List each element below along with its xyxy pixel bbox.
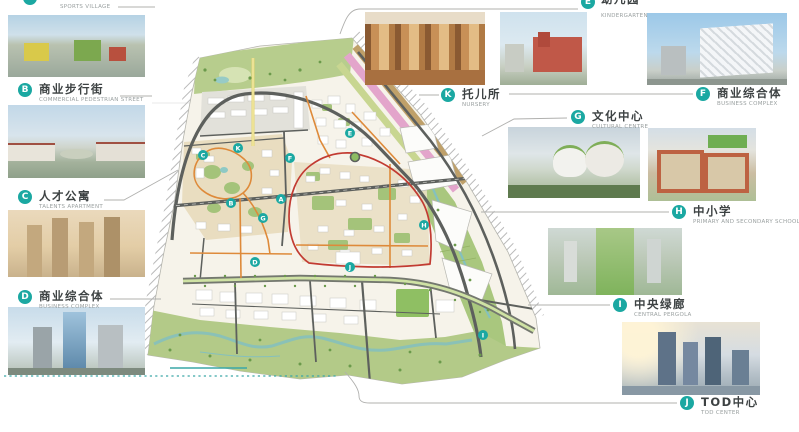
- decor-tower: [27, 225, 42, 277]
- decor-street: [8, 368, 145, 375]
- label-H-subtitle: PRIMARY AND SECONDARY SCHOOLS: [693, 219, 799, 225]
- label-K-subtitle: NURSERY: [462, 102, 501, 108]
- decor-curved-hall: [553, 145, 587, 176]
- decor-curved-hall: [585, 141, 625, 177]
- decor-building-right: [96, 142, 145, 162]
- label-C-subtitle: TALENTS APARTMENT: [39, 204, 103, 210]
- decor-floor: [365, 70, 485, 85]
- photo-cultural-centre: [508, 127, 640, 198]
- label-K-title: 托儿所: [462, 88, 501, 100]
- decor-plaza: [60, 149, 93, 159]
- photo-sports-village: [8, 15, 145, 77]
- decor-tower: [79, 222, 94, 277]
- decor-tower: [661, 46, 686, 75]
- badge-B: B: [18, 83, 32, 97]
- label-I: I 中央绿廊 CENTRAL PERGOLA: [613, 298, 692, 318]
- label-E-title: 幼儿园: [601, 0, 640, 5]
- label-F: F 商业综合体 BUSINESS COMPLEX: [696, 87, 782, 107]
- map-marker-label-F: F: [288, 154, 292, 162]
- label-H-title: 中小学: [693, 205, 799, 217]
- photo-kindergarten: [500, 12, 587, 85]
- decor-tower: [683, 342, 698, 384]
- photo-central-green-corridor: [548, 228, 682, 295]
- label-C-title: 人才公寓: [39, 190, 103, 202]
- photo-tod-center: [622, 322, 760, 395]
- west-pond: [220, 167, 228, 173]
- label-B-subtitle: COMMERCIAL PEDESTRIAN STREET: [39, 97, 144, 103]
- roundabout: [351, 153, 360, 162]
- label-G-subtitle: CULTURAL CENTRE: [592, 124, 648, 130]
- label-D-subtitle: BUSINESS COMPLEX: [39, 304, 104, 310]
- badge-J: J: [680, 396, 694, 410]
- label-I-subtitle: CENTRAL PERGOLA: [634, 312, 692, 318]
- photo-schools: [648, 128, 756, 201]
- decor-roads: [622, 386, 760, 395]
- label-K: K 托儿所 NURSERY: [441, 88, 501, 108]
- photo-business-complex-f: [647, 13, 787, 85]
- badge-I: I: [613, 298, 627, 312]
- label-I-title: 中央绿廊: [634, 298, 692, 310]
- map-marker-label-H: H: [421, 221, 426, 229]
- label-E-subtitle: KINDERGARTEN: [601, 13, 648, 19]
- decor-tower: [732, 350, 749, 385]
- photo-talents-apartment: [8, 210, 145, 277]
- decor-building-green: [74, 40, 101, 62]
- decor-trees: [508, 185, 640, 198]
- decor-tower: [705, 337, 722, 385]
- decor-courtyard-block: [704, 153, 749, 193]
- label-J-title: TOD中心: [701, 396, 759, 408]
- label-G-title: 文化中心: [592, 110, 648, 122]
- label-J: J TOD中心 TOD CENTER: [680, 396, 759, 416]
- photo-business-complex-d: [8, 307, 145, 375]
- label-H: H 中小学 PRIMARY AND SECONDARY SCHOOLS: [672, 205, 799, 225]
- decor-green-axis: [596, 228, 634, 295]
- decor-tower: [104, 217, 120, 277]
- label-B: B 商业步行街 COMMERCIAL PEDESTRIAN STREET: [18, 83, 144, 103]
- label-F-subtitle: BUSINESS COMPLEX: [717, 101, 782, 107]
- map-marker-label-D: D: [252, 258, 258, 266]
- decor-tower: [564, 241, 577, 281]
- decor-lattice-building: [700, 23, 773, 77]
- decor-tower: [52, 218, 68, 277]
- decor-glass-tower: [63, 312, 86, 372]
- label-D: D 商业综合体 BUSINESS COMPLEX: [18, 290, 104, 310]
- label-D-title: 商业综合体: [39, 290, 104, 302]
- label-G: G 文化中心 CULTURAL CENTRE: [571, 110, 648, 130]
- decor-tower: [658, 332, 676, 385]
- map-marker-label-E: E: [348, 129, 352, 137]
- decor-courtyard-block: [657, 150, 704, 193]
- decor-tower-gray: [33, 327, 52, 371]
- map-marker-label-A: A: [278, 195, 283, 203]
- badge-G: G: [571, 110, 585, 124]
- decor-tower-gray: [98, 325, 123, 373]
- decor-street: [647, 79, 787, 85]
- map-marker-label-G: G: [260, 214, 265, 222]
- label-B-title: 商业步行街: [39, 83, 144, 95]
- label-F-title: 商业综合体: [717, 87, 782, 99]
- map-marker-label-C: C: [201, 151, 206, 159]
- decor-tower: [647, 239, 660, 283]
- decor-building-yellow: [24, 43, 49, 62]
- label-C: C 人才公寓 TALENTS APARTMENT: [18, 190, 103, 210]
- map-marker-label-I: I: [482, 331, 484, 339]
- decor-tower: [505, 44, 524, 72]
- label-A-subtitle: SPORTS VILLAGE: [60, 4, 110, 10]
- master-plan-board: ABCDEFGHIJK: [0, 0, 799, 432]
- decor-sports-field: [708, 135, 747, 148]
- badge-C: C: [18, 190, 32, 204]
- badge-K: K: [441, 88, 455, 102]
- map-marker-label-J: J: [348, 263, 351, 271]
- decor-building-red: [109, 47, 125, 61]
- photo-commercial-pedestrian-street: [8, 105, 145, 178]
- badge-D: D: [18, 290, 32, 304]
- badge-H: H: [672, 205, 686, 219]
- map-marker-label-B: B: [229, 199, 234, 207]
- label-J-subtitle: TOD CENTER: [701, 410, 759, 416]
- decor-red-roof: [538, 32, 550, 47]
- decor-ceiling: [365, 12, 485, 24]
- decor-building-left: [8, 143, 55, 161]
- badge-F: F: [696, 87, 710, 101]
- photo-nursery-interior: [365, 12, 485, 85]
